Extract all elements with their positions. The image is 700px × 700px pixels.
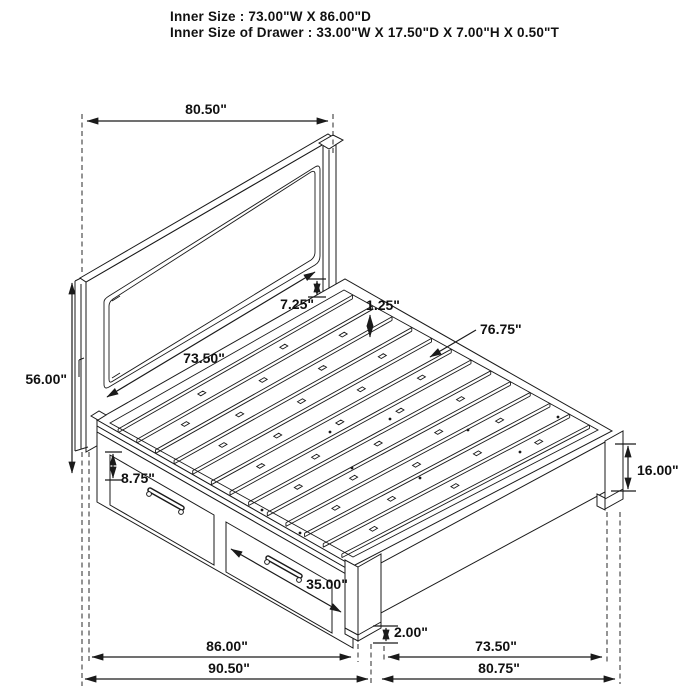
drawer-1-handle-standoff <box>147 492 152 497</box>
bed-dimension-drawing: Inner Size : 73.00"W X 86.00"D Inner Siz… <box>0 0 700 700</box>
drawing-title-line2: Inner Size of Drawer : 33.00"W X 17.50"D… <box>170 25 560 40</box>
dim-base-inner-depth-label: 86.00" <box>206 638 248 654</box>
dim-foot-inner-width-label: 73.50" <box>475 638 517 654</box>
slat-hole-dot <box>329 431 332 434</box>
dim-slat-area-label: 76.75" <box>480 321 522 337</box>
technical-drawing-page: Inner Size : 73.00"W X 86.00"D Inner Siz… <box>0 0 700 700</box>
dim-overall-depth-label: 90.50" <box>208 660 250 676</box>
slat-hole-dot <box>389 418 392 421</box>
slat-hole-dot <box>351 467 354 470</box>
dim-foot-overall-width-label: 80.75" <box>478 660 520 676</box>
drawer-2-handle-standoff <box>265 560 270 565</box>
drawer-1-handle-standoff <box>179 510 184 515</box>
dim-floor-clearance-label: 2.00" <box>394 624 428 640</box>
dim-footboard-height-label: 16.00" <box>637 462 679 478</box>
dim-panel-gap-label: 7.25" <box>280 296 314 312</box>
foot-post-front <box>345 554 381 641</box>
dim-headboard-height-label: 56.00" <box>25 371 67 387</box>
drawer-2-handle-standoff <box>297 578 302 583</box>
slat-hole-dot <box>557 416 560 419</box>
slat-hole-dot <box>467 429 470 432</box>
dim-headboard-width-label: 80.50" <box>185 101 227 117</box>
dim-headboard-inner-width-label: 73.50" <box>183 350 225 366</box>
slat-hole-dot <box>519 451 522 454</box>
dim-rail-top-height-label: 8.75" <box>121 470 155 486</box>
slat-hole-dot <box>419 477 422 480</box>
drawing-title-line1: Inner Size : 73.00"W X 86.00"D <box>170 9 371 24</box>
slat-hole-dot <box>261 509 264 512</box>
right-post-pad-notch <box>597 494 605 510</box>
dim-slat-thickness-label: 1.25" <box>366 297 400 313</box>
slat-hole-dot <box>299 532 302 535</box>
dim-drawer-width-label: 35.00" <box>306 576 348 592</box>
